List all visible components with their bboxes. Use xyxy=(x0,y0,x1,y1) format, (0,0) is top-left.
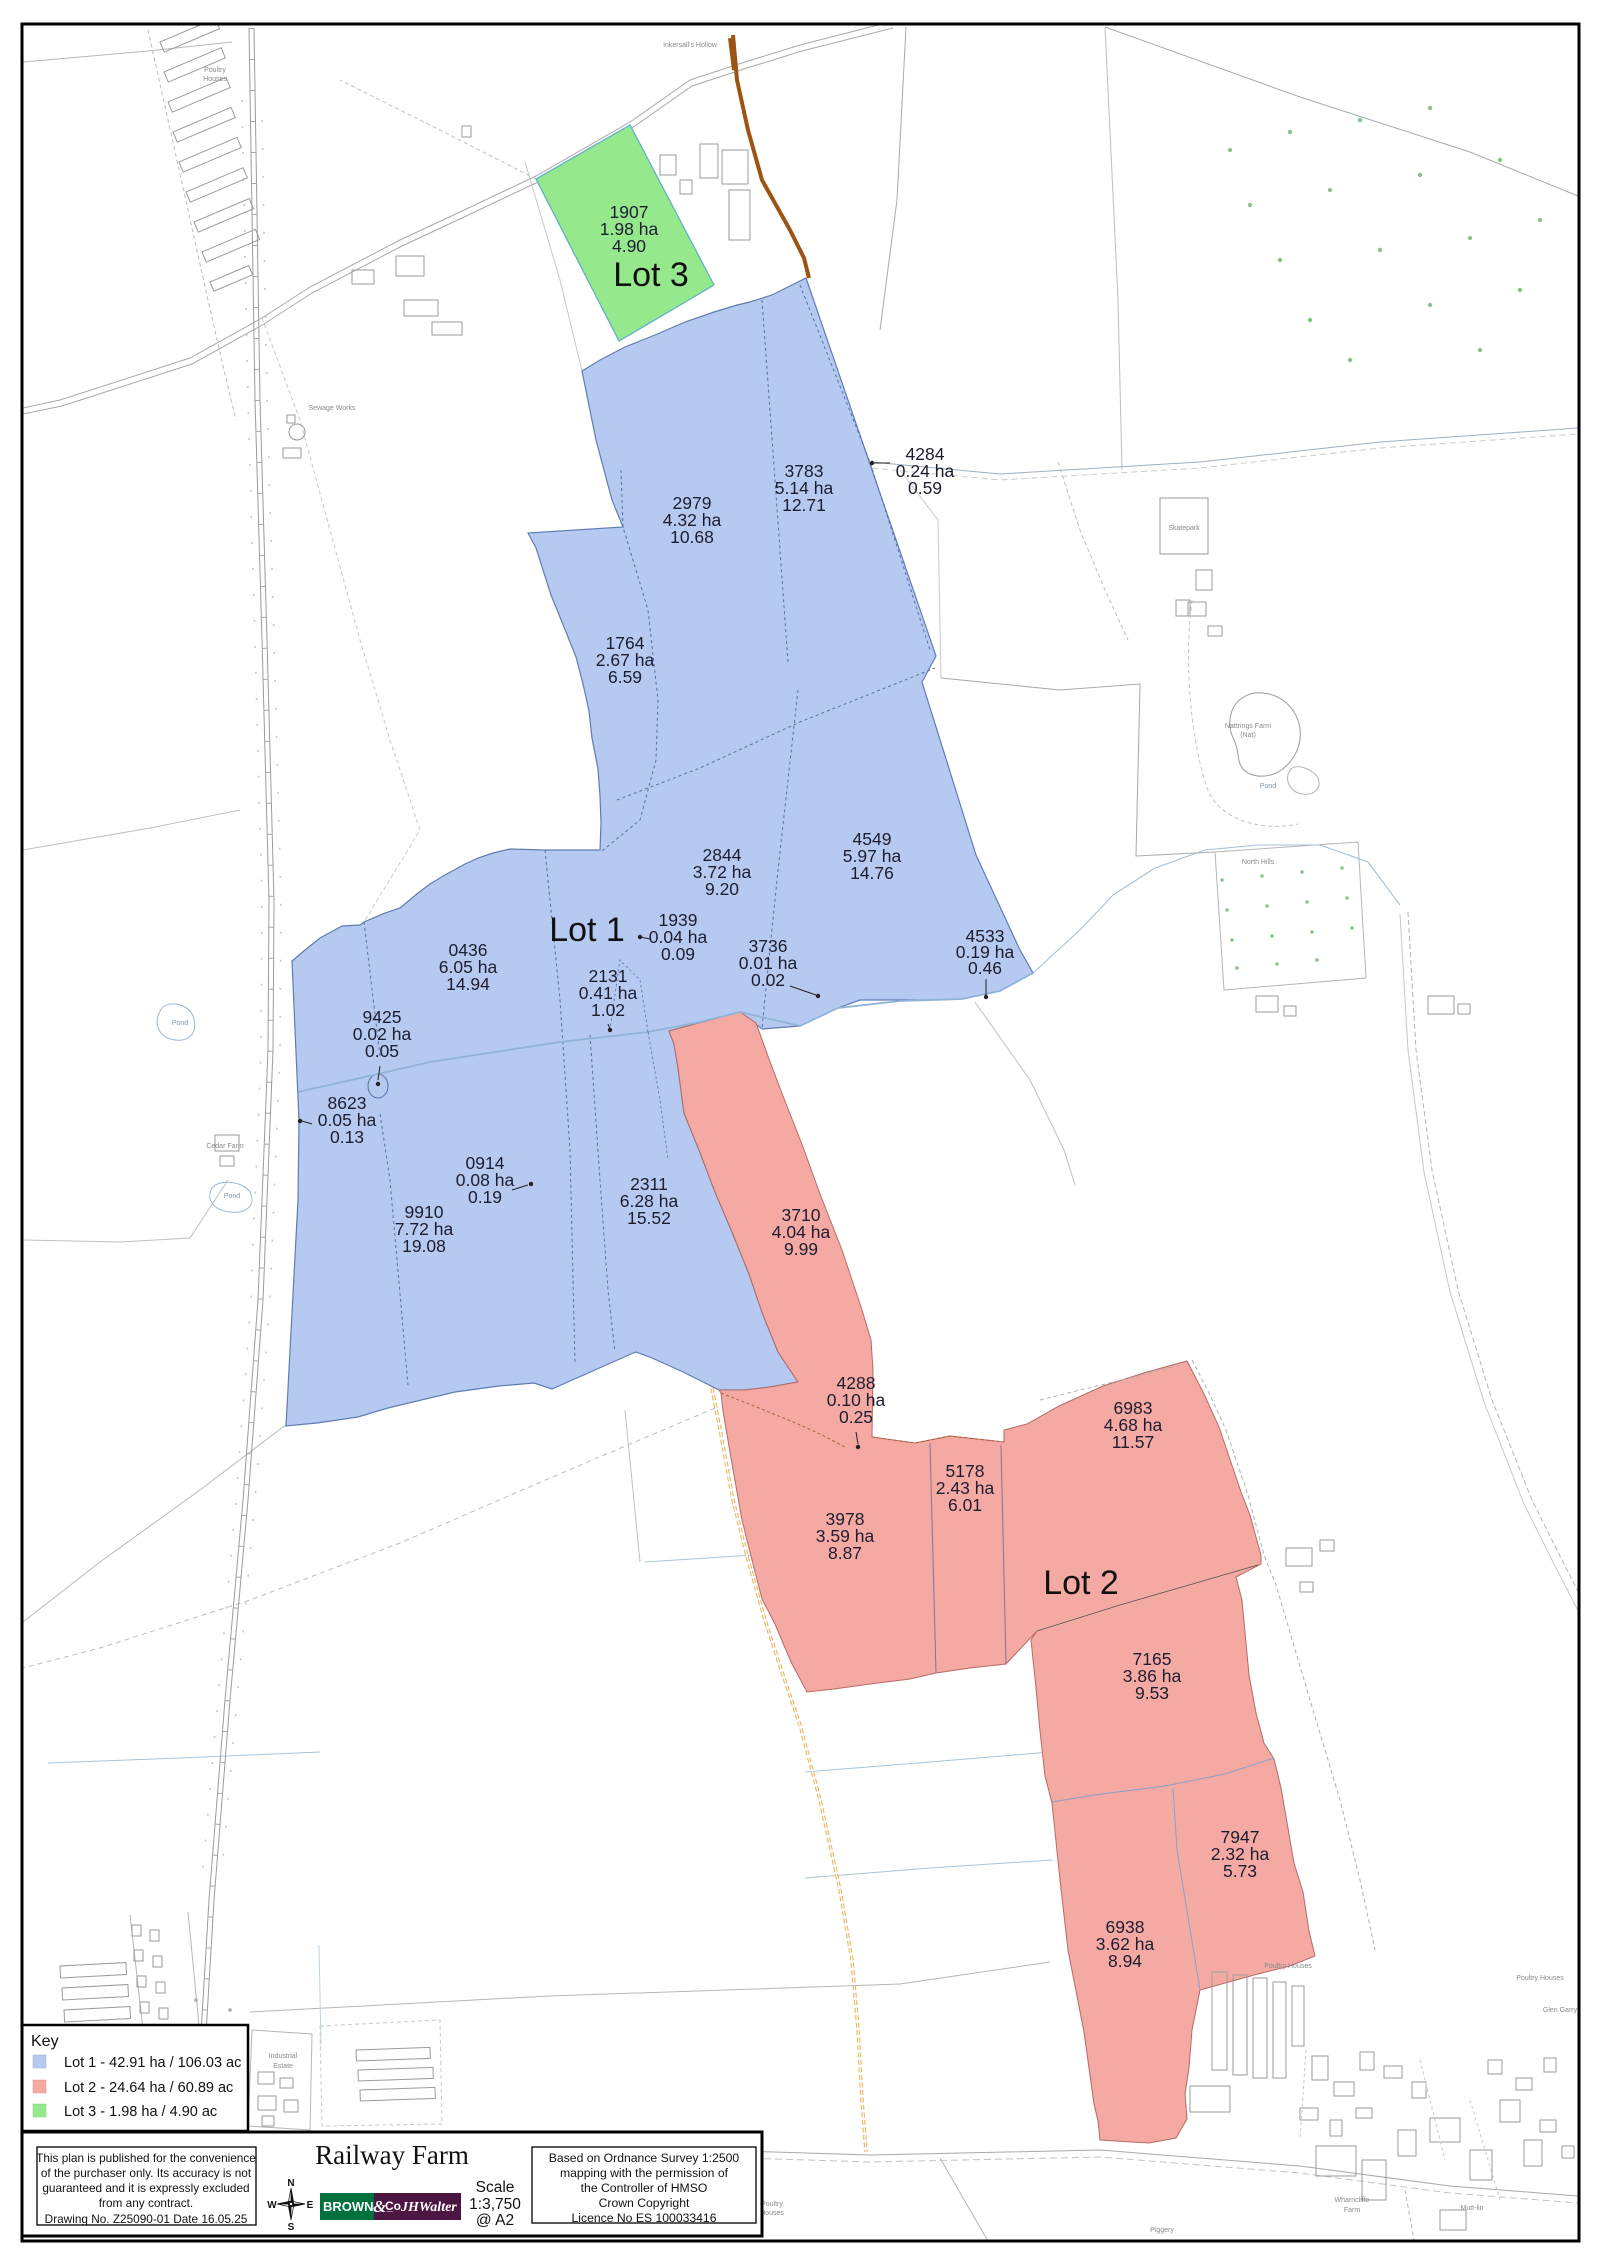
svg-text:(Nat): (Nat) xyxy=(1240,732,1256,739)
svg-text:Cedar Farm: Cedar Farm xyxy=(206,1143,244,1150)
svg-text:1:3,750: 1:3,750 xyxy=(469,2196,521,2213)
svg-text:6.01: 6.01 xyxy=(948,1495,982,1515)
svg-text:0.19: 0.19 xyxy=(468,1187,502,1207)
svg-text:Lot 1: Lot 1 xyxy=(549,911,625,949)
svg-text:Houses: Houses xyxy=(760,2210,784,2217)
svg-text:BROWN: BROWN xyxy=(323,2199,374,2214)
svg-text:10.68: 10.68 xyxy=(670,527,714,547)
svg-text:9.20: 9.20 xyxy=(705,879,739,899)
svg-text:Lot 2: Lot 2 xyxy=(1043,1564,1119,1602)
svg-text:Key: Key xyxy=(31,2033,59,2050)
svg-text:N: N xyxy=(287,2178,294,2189)
svg-text:0.05: 0.05 xyxy=(365,1041,399,1061)
svg-text:W: W xyxy=(267,2200,277,2211)
svg-text:mapping with the permission of: mapping with the permission of xyxy=(560,2166,729,2180)
svg-text:Based on Ordnance Survey 1:250: Based on Ordnance Survey 1:2500 xyxy=(549,2151,740,2165)
svg-text:Poultry Houses: Poultry Houses xyxy=(1516,1975,1564,1982)
svg-text:14.94: 14.94 xyxy=(446,974,490,994)
svg-text:Pond: Pond xyxy=(224,1193,240,1200)
svg-text:Skatepark: Skatepark xyxy=(1168,525,1200,532)
svg-text:C̲o: C̲o xyxy=(385,2199,401,2213)
svg-text:14.76: 14.76 xyxy=(850,863,894,883)
svg-text:Licence No ES 100033416: Licence No ES 100033416 xyxy=(571,2211,716,2225)
svg-text:0.02: 0.02 xyxy=(751,970,785,990)
svg-text:Lot 2 - 24.64 ha / 60.89 ac: Lot 2 - 24.64 ha / 60.89 ac xyxy=(64,2080,233,2096)
svg-text:0.09: 0.09 xyxy=(661,944,695,964)
svg-text:Industrial: Industrial xyxy=(269,2053,298,2060)
svg-text:Scale: Scale xyxy=(476,2179,515,2196)
svg-text:S: S xyxy=(288,2222,295,2233)
svg-text:0.46: 0.46 xyxy=(968,958,1002,978)
svg-text:Lot 3: Lot 3 xyxy=(613,256,689,294)
svg-text:Poultry Houses: Poultry Houses xyxy=(1264,1963,1312,1970)
svg-text:8.87: 8.87 xyxy=(828,1543,862,1563)
svg-text:Wharncliffe: Wharncliffe xyxy=(1335,2197,1370,2204)
svg-text:Sewage Works: Sewage Works xyxy=(309,405,356,412)
svg-text:Glen Garry: Glen Garry xyxy=(1543,2007,1578,2014)
svg-text:Houses: Houses xyxy=(203,76,227,83)
svg-text:9.53: 9.53 xyxy=(1135,1683,1169,1703)
svg-text:9.99: 9.99 xyxy=(784,1239,818,1259)
svg-text:the Controller of HMSO: the Controller of HMSO xyxy=(581,2181,708,2195)
svg-text:Pond: Pond xyxy=(172,1020,188,1027)
svg-text:from any contract.: from any contract. xyxy=(99,2196,193,2210)
svg-text:Inkersall's Hollow: Inkersall's Hollow xyxy=(663,42,718,49)
svg-text:Estate: Estate xyxy=(273,2063,293,2070)
svg-text:Piggery: Piggery xyxy=(1150,2227,1174,2234)
svg-text:Farm: Farm xyxy=(1344,2207,1361,2214)
svg-text:Drawing No. Z25090-01 Date: Drawing No. Z25090-01 Date 16.05.25 xyxy=(45,2212,248,2226)
svg-text:19.08: 19.08 xyxy=(402,1236,446,1256)
svg-text:guaranteed and it is expressly: guaranteed and it is expressly excluded xyxy=(42,2181,249,2195)
svg-text:8.94: 8.94 xyxy=(1108,1951,1142,1971)
svg-text:6.59: 6.59 xyxy=(608,667,642,687)
svg-text:12.71: 12.71 xyxy=(782,495,826,515)
svg-text:15.52: 15.52 xyxy=(627,1208,671,1228)
svg-text:This plan is published for the: This plan is published for the convenien… xyxy=(36,2151,256,2165)
svg-text:North Hills: North Hills xyxy=(1242,859,1275,866)
svg-text:1.02: 1.02 xyxy=(591,1000,625,1020)
svg-text:0.25: 0.25 xyxy=(839,1407,873,1427)
svg-text:Poultry: Poultry xyxy=(204,67,226,74)
svg-text:Nattrings Farm: Nattrings Farm xyxy=(1225,723,1271,730)
svg-text:E: E xyxy=(307,2200,314,2211)
svg-text:Poultry: Poultry xyxy=(761,2201,783,2208)
svg-text:Railway Farm: Railway Farm xyxy=(315,2140,469,2170)
svg-text:4.90: 4.90 xyxy=(612,236,646,256)
svg-text:Lot 1 - 42.91 ha / 106.03 ac: Lot 1 - 42.91 ha / 106.03 ac xyxy=(64,2055,241,2071)
svg-text:JHWalter: JHWalter xyxy=(400,2200,457,2215)
svg-text:Crown Copyright: Crown Copyright xyxy=(599,2196,690,2210)
svg-text:Mutt-lin: Mutt-lin xyxy=(1461,2205,1484,2212)
svg-text:Pond: Pond xyxy=(1260,783,1276,790)
svg-text:5.73: 5.73 xyxy=(1223,1861,1257,1881)
svg-text:Lot 3 - 1.98 ha / 4.90 ac: Lot 3 - 1.98 ha / 4.90 ac xyxy=(64,2104,217,2120)
svg-text:11.57: 11.57 xyxy=(1112,1432,1155,1452)
svg-text:0.59: 0.59 xyxy=(908,478,942,498)
svg-text:@ A2: @ A2 xyxy=(476,2212,514,2229)
svg-text:of the purchaser only. Its acc: of the purchaser only. Its accuracy is n… xyxy=(41,2166,252,2180)
svg-text:0.13: 0.13 xyxy=(330,1127,364,1147)
